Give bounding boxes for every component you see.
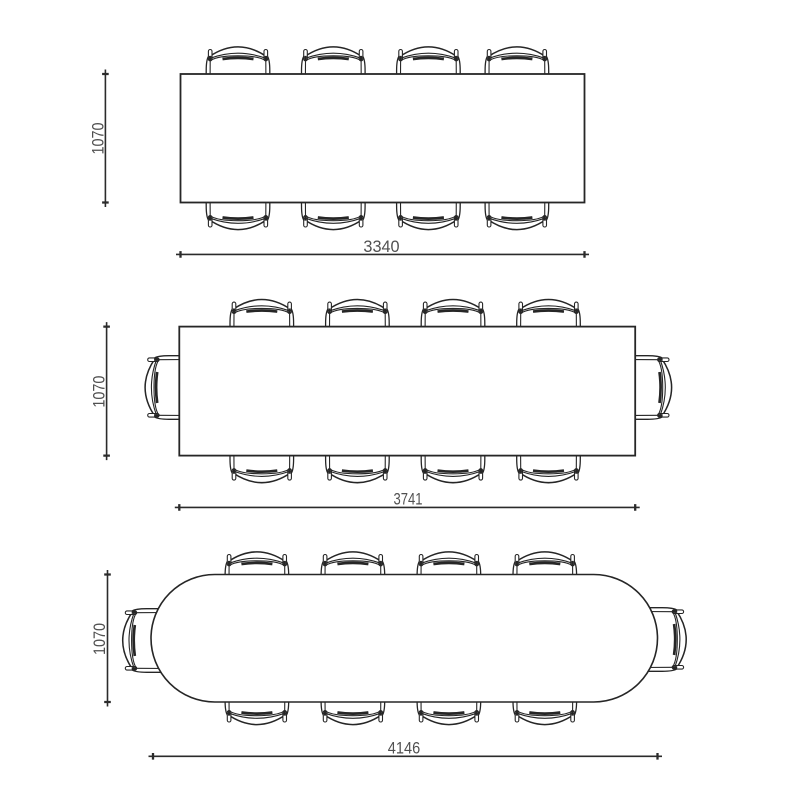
- svg-text:3741: 3741: [394, 491, 423, 509]
- svg-text:4146: 4146: [388, 740, 420, 758]
- svg-text:3340: 3340: [363, 238, 399, 256]
- svg-text:1070: 1070: [91, 376, 109, 408]
- svg-text:1070: 1070: [90, 122, 108, 154]
- svg-text:1070: 1070: [91, 623, 109, 655]
